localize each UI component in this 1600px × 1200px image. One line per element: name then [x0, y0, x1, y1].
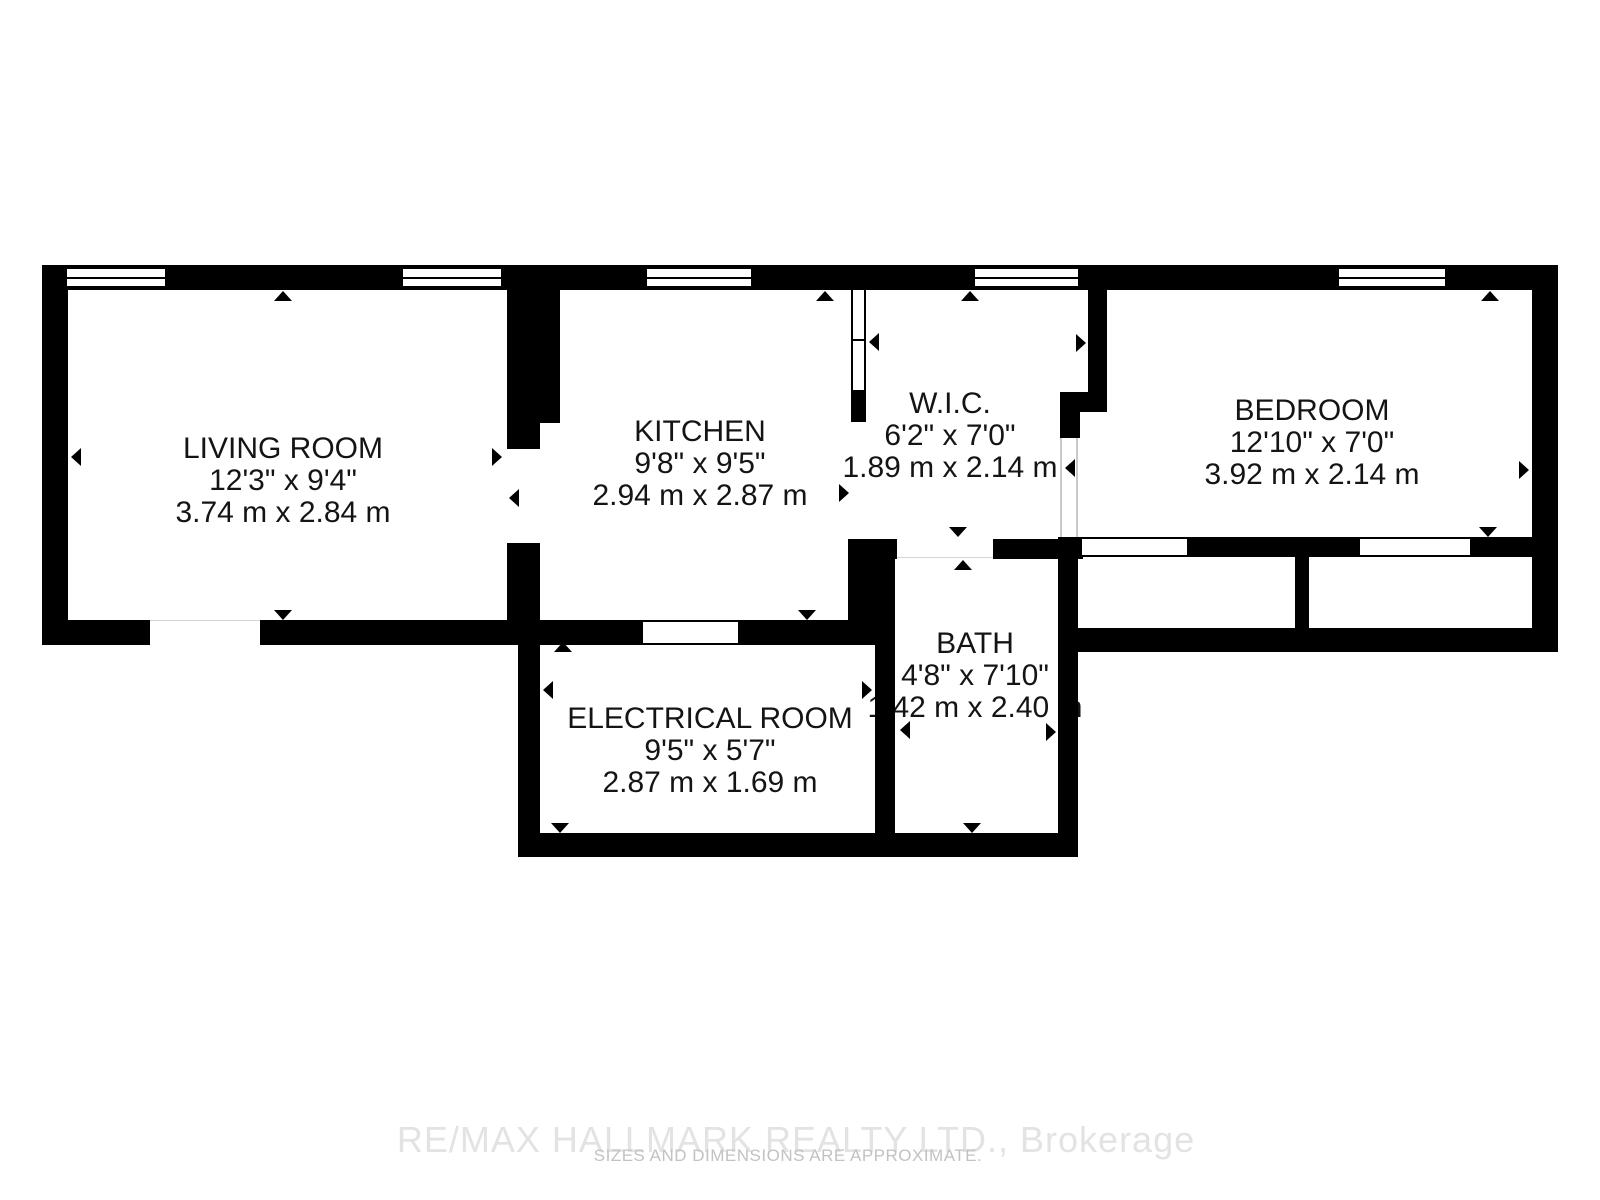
room-name: ELECTRICAL ROOM	[567, 703, 853, 735]
floor-plan: LIVING ROOM 12'3" x 9'4" 3.74 m x 2.84 m…	[0, 0, 1600, 1200]
room-label-electrical-room: ELECTRICAL ROOM 9'5" x 5'7" 2.87 m x 1.6…	[567, 703, 853, 799]
room-name: BEDROOM	[1204, 395, 1419, 427]
wall-electrical-bath-divider	[875, 625, 895, 837]
room-dim-metric: 3.92 m x 2.14 m	[1204, 459, 1419, 491]
marker-electrical-left-icon	[543, 681, 553, 699]
bedroom-window	[1337, 267, 1447, 288]
marker-bedroom-right-icon	[1519, 461, 1529, 479]
wall-left	[42, 265, 68, 645]
room-label-bedroom: BEDROOM 12'10" x 7'0" 3.92 m x 2.14 m	[1204, 395, 1419, 491]
closet-opening-right	[1360, 537, 1470, 557]
marker-wic-top-icon	[961, 291, 979, 301]
room-name: LIVING ROOM	[175, 433, 390, 465]
marker-electrical-top-icon	[554, 642, 572, 652]
room-name: BATH	[867, 628, 1082, 660]
living-room-window-2	[401, 267, 503, 288]
wall-wic-bedroom-upper	[1088, 265, 1107, 392]
electrical-room-opening	[643, 620, 738, 645]
marker-bath-right-icon	[1046, 723, 1056, 741]
disclaimer-text: SIZES AND DIMENSIONS ARE APPROXIMATE.	[594, 1146, 983, 1166]
wall-living-kitchen-divider-upper	[507, 265, 560, 423]
marker-kitchen-left-icon	[509, 489, 519, 507]
marker-living-top-icon	[274, 291, 292, 301]
wall-kitchen-bath-corner	[848, 559, 895, 625]
closet-opening-left	[1082, 537, 1187, 557]
bedroom-door-jamb-right	[1076, 438, 1078, 537]
room-dim-metric: 3.74 m x 2.84 m	[175, 497, 390, 529]
marker-bath-bottom-icon	[963, 823, 981, 833]
bedroom-door-jamb-left	[1060, 438, 1062, 537]
room-dim-imperial: 12'3" x 9'4"	[175, 465, 390, 497]
marker-electrical-right-icon	[862, 681, 872, 699]
room-dim-metric: 1.89 m x 2.14 m	[842, 452, 1057, 484]
marker-bedroom-door-icon	[1065, 459, 1075, 477]
marker-living-bottom-icon	[274, 610, 292, 620]
marker-kitchen-right-icon	[839, 484, 849, 502]
room-label-living-room: LIVING ROOM 12'3" x 9'4" 3.74 m x 2.84 m	[175, 433, 390, 529]
wall-top	[42, 265, 1558, 290]
marker-living-right-icon	[492, 448, 502, 466]
wall-living-kitchen-divider-lower	[507, 543, 540, 625]
kitchen-window	[645, 267, 753, 288]
wall-wic-bedroom-jog	[1060, 392, 1107, 412]
marker-electrical-bottom-icon	[551, 823, 569, 833]
marker-bath-top-icon	[954, 560, 972, 570]
marker-bedroom-top-icon	[1481, 291, 1499, 301]
room-name: W.I.C.	[842, 388, 1057, 420]
kitchen-wic-partition-solid	[851, 388, 866, 422]
room-dim-metric: 2.94 m x 2.87 m	[592, 480, 807, 512]
marker-wic-bottom-icon	[949, 527, 967, 537]
marker-kitchen-top-icon	[816, 291, 834, 301]
marker-kitchen-partition-icon	[869, 333, 879, 351]
marker-wic-right-icon	[1076, 334, 1086, 352]
marker-living-left-icon	[71, 448, 81, 466]
room-dim-imperial: 4'8" x 7'10"	[867, 660, 1082, 692]
wall-electrical-left	[518, 645, 540, 840]
wall-right	[1532, 265, 1558, 652]
wall-bottom-electrical-bath	[518, 833, 1078, 857]
wall-living-kitchen-divider-step	[507, 423, 540, 449]
living-room-window-1	[65, 267, 167, 288]
wall-closet-divider	[1295, 557, 1309, 632]
marker-bath-left-icon	[900, 721, 910, 739]
room-name: KITCHEN	[592, 416, 807, 448]
wic-window	[973, 267, 1080, 288]
room-dim-imperial: 9'8" x 9'5"	[592, 448, 807, 480]
room-label-kitchen: KITCHEN 9'8" x 9'5" 2.94 m x 2.87 m	[592, 416, 807, 512]
wall-hall-bath-left	[848, 539, 897, 559]
wall-bath-right	[1058, 537, 1078, 857]
room-dim-imperial: 9'5" x 5'7"	[567, 735, 853, 767]
marker-bedroom-bottom-icon	[1479, 527, 1497, 537]
room-label-bath: BATH 4'8" x 7'10" 1.42 m x 2.40 m	[867, 628, 1082, 724]
room-dim-imperial: 6'2" x 7'0"	[842, 420, 1057, 452]
wall-wic-bedroom-mid	[1060, 412, 1080, 438]
room-dim-imperial: 12'10" x 7'0"	[1204, 427, 1419, 459]
room-dim-metric: 1.42 m x 2.40 m	[867, 692, 1082, 724]
kitchen-wic-partition-thin	[851, 288, 866, 392]
marker-kitchen-bottom-icon	[798, 610, 816, 620]
room-label-wic: W.I.C. 6'2" x 7'0" 1.89 m x 2.14 m	[842, 388, 1057, 484]
room-dim-metric: 2.87 m x 1.69 m	[567, 767, 853, 799]
bath-door-threshold	[897, 557, 993, 558]
entry-opening	[150, 620, 260, 646]
